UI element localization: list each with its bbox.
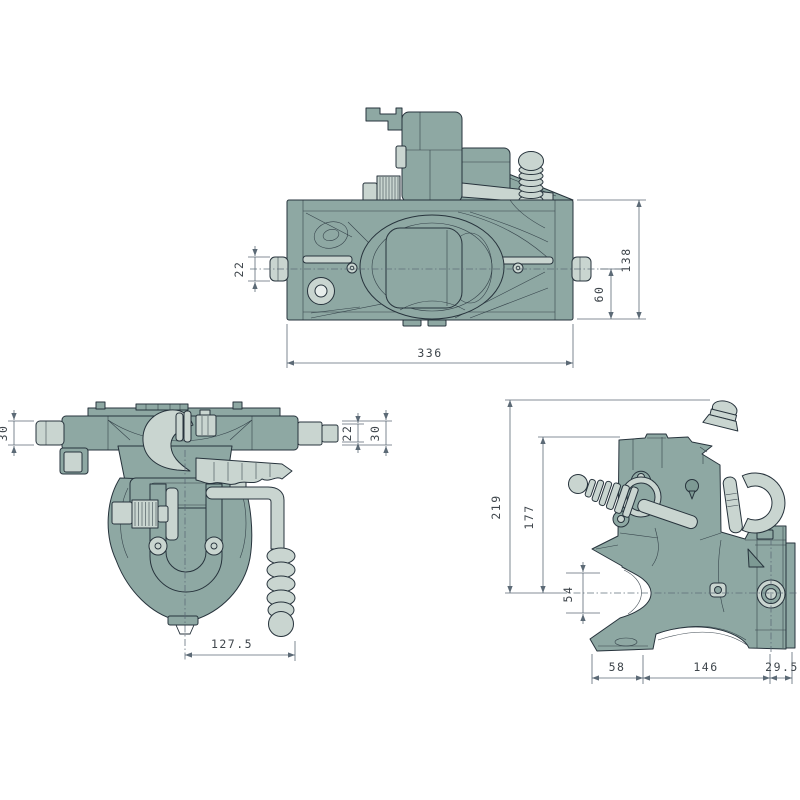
dimension-plan-center-to-grip: 127.5	[185, 637, 295, 661]
dimension-plan-right-pin-inner: 22	[340, 413, 364, 453]
dim-label-plan-right-pin-outer: 30	[368, 425, 382, 442]
drawing-page: 22 138 60 336	[0, 0, 800, 800]
front-knob-grip	[519, 152, 544, 205]
lever-ball-end	[269, 612, 294, 637]
dimension-front-width: 336	[287, 324, 573, 368]
dim-label-side-overall-height: 219	[489, 494, 503, 519]
side-view-body	[590, 434, 786, 651]
plan-view: 30 22 30 127.5	[0, 402, 392, 662]
dim-label-side-body-height: 177	[522, 504, 536, 529]
dim-label-front-pin: 22	[232, 261, 246, 278]
dim-label-front-center: 60	[592, 286, 606, 303]
dimension-plan-left-pin: 30	[0, 410, 34, 456]
dim-label-front-width: 336	[417, 346, 442, 360]
side-view: 219 177 54 58 146 29.5	[489, 397, 799, 684]
dim-label-plan-right-pin-inner: 22	[340, 425, 354, 442]
side-spring-guard	[722, 473, 785, 534]
dimension-side-body-height: 177	[522, 437, 620, 593]
dim-label-side-eye-span: 54	[561, 586, 575, 603]
side-cap-knob	[703, 397, 744, 431]
side-small-lug	[710, 583, 726, 597]
front-view-center-boss	[360, 215, 504, 319]
dimension-side-bottom: 58 146 29.5	[592, 652, 799, 684]
dim-label-plan-center-to-grip: 127.5	[211, 637, 253, 651]
dim-label-side-rear-offset: 29.5	[765, 660, 799, 674]
front-view-top-mechanism	[363, 108, 573, 207]
dim-label-side-body-length: 146	[693, 660, 718, 674]
dim-label-plan-left-pin: 30	[0, 425, 10, 442]
front-guide-hole	[308, 278, 335, 305]
front-bolt-left	[347, 263, 357, 273]
front-view: 22 138 60 336	[232, 108, 646, 368]
dim-label-side-jaw-depth: 58	[609, 660, 626, 674]
dimension-front-center-to-base: 60	[592, 269, 622, 319]
front-bolt-right	[513, 263, 523, 273]
technical-drawing-canvas: 22 138 60 336	[0, 0, 800, 800]
